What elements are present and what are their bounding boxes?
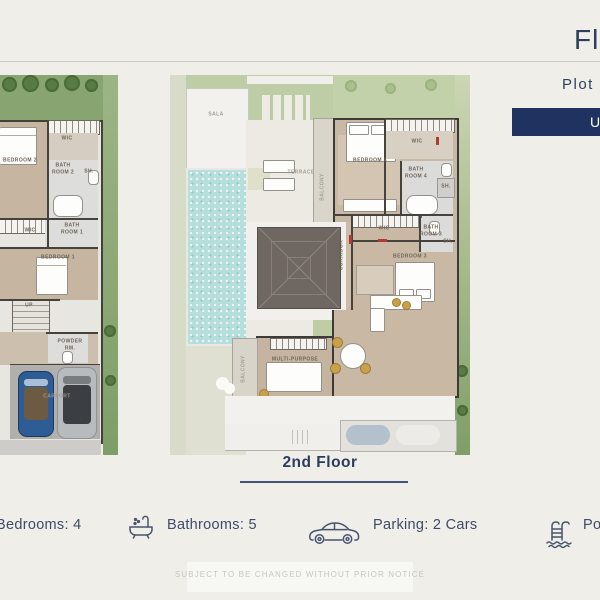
bathtub — [53, 195, 83, 217]
room-label: WIC — [25, 228, 36, 235]
room-label: BATH ROOM 1 — [60, 222, 84, 236]
page: { "colors": { "accent_navy": "#20325f", … — [0, 0, 600, 600]
door-marker — [349, 235, 352, 244]
room-label: WIC — [62, 136, 73, 143]
toilet — [441, 163, 452, 177]
bush — [85, 79, 98, 92]
bush — [2, 77, 17, 92]
sala-pavilion — [186, 88, 249, 170]
wall — [400, 161, 402, 214]
room-label: WIC — [379, 226, 390, 233]
caption-underline — [240, 481, 408, 483]
room-label: POWDER RM. — [55, 338, 85, 352]
room-label: WIC — [412, 139, 423, 146]
garden-strip — [103, 75, 118, 455]
decor — [392, 298, 401, 307]
room-label: MULTI-PURPOSE — [272, 357, 318, 364]
plant — [224, 383, 235, 394]
desk — [356, 265, 394, 295]
roof-skylight — [257, 227, 341, 309]
room-label: SH. — [84, 169, 94, 176]
door-marker — [436, 137, 439, 145]
bush — [385, 83, 396, 94]
entry-steps — [288, 430, 310, 444]
walkway — [247, 76, 333, 84]
stat-bedrooms: Bedrooms: 4 — [0, 517, 82, 533]
car-windshield — [63, 376, 91, 384]
room-label: BEDROOM 1 — [41, 255, 75, 262]
disclaimer-text: SUBJECT TO BE CHANGED WITHOUT PRIOR NOTI… — [150, 570, 450, 579]
bench — [343, 199, 397, 212]
room-label: BATH ROOM 3 — [419, 224, 443, 238]
header-action-button-label: U — [590, 114, 600, 130]
stat-bathrooms: Bathrooms: 5 — [167, 517, 257, 533]
room-label: CARPORT — [43, 394, 71, 401]
decor — [402, 301, 411, 310]
bush — [345, 80, 357, 92]
wall — [0, 218, 98, 220]
deck — [225, 424, 340, 451]
counter — [370, 308, 385, 332]
wic-floor — [48, 133, 98, 160]
car-windshield — [24, 379, 48, 386]
wall — [0, 299, 60, 301]
lounge-chair — [263, 178, 295, 191]
pool — [186, 168, 250, 346]
bush — [104, 325, 116, 337]
wall — [46, 332, 98, 334]
header-action-button[interactable]: U — [512, 108, 600, 136]
car-interior — [24, 387, 48, 420]
first-floor-plan: BEDROOM 2WICBATH ROOM 2SH.WICBATH ROOM 1… — [0, 75, 118, 460]
room-label: SALA — [208, 112, 223, 119]
room-label: TERRACE — [288, 170, 315, 177]
daybed — [266, 362, 322, 392]
stat-pool: Poo — [583, 517, 600, 533]
chair — [332, 337, 343, 348]
wardrobe — [270, 338, 327, 350]
chair — [330, 363, 341, 374]
room-label: CORRIDOR — [339, 240, 346, 270]
pool-ladder-icon — [545, 517, 573, 549]
header-divider — [0, 61, 600, 62]
wall — [384, 118, 386, 214]
room-label: BALCONY — [241, 355, 248, 383]
garden-steps — [262, 95, 310, 120]
car-roof-shape — [346, 425, 390, 445]
plot-label: Plot — [562, 76, 594, 93]
bathtub — [406, 195, 438, 215]
wall — [0, 247, 98, 249]
bush — [64, 75, 80, 91]
room-label: BEDROOM 4 — [353, 158, 387, 165]
room-label: BEDROOM 3 — [393, 254, 427, 261]
driveway — [0, 440, 101, 455]
door-marker — [378, 239, 387, 242]
wall — [351, 214, 353, 310]
toilet — [62, 351, 73, 364]
car-icon — [308, 516, 360, 546]
wall — [47, 120, 49, 248]
room-label: BALCONY — [320, 173, 327, 201]
room-label: BATH ROOM 4 — [404, 166, 428, 180]
site-margin — [170, 75, 186, 455]
bed-pillow-line — [36, 265, 66, 266]
car-roof — [63, 385, 91, 424]
bush — [22, 75, 39, 92]
stat-parking: Parking: 2 Cars — [373, 517, 477, 533]
chair — [360, 363, 371, 374]
bush — [105, 375, 116, 386]
room-label: SH. — [443, 239, 453, 246]
car-dark — [57, 367, 97, 439]
room-label: UP — [25, 303, 33, 310]
bush — [457, 405, 468, 416]
pillow — [349, 125, 369, 135]
wardrobe — [0, 218, 46, 234]
bed — [36, 257, 68, 295]
bed-pillow-line — [0, 135, 36, 136]
second-floor-plan: SALATERRACEBALCONYBEDROOM 4WICBATH ROOM … — [170, 75, 470, 455]
room-label: BEDROOM 2 — [3, 158, 37, 165]
page-title: Fl — [574, 24, 599, 56]
car-blue — [18, 371, 54, 437]
car-roof-shape — [396, 425, 440, 445]
room-label: SH. — [441, 184, 451, 191]
bush — [45, 78, 59, 92]
room-label: BATH ROOM 2 — [51, 162, 75, 176]
floor-caption: 2nd Floor — [170, 454, 470, 472]
balcony — [313, 118, 335, 224]
bush — [425, 79, 437, 91]
bathtub-icon — [127, 513, 155, 541]
wall — [352, 240, 455, 242]
